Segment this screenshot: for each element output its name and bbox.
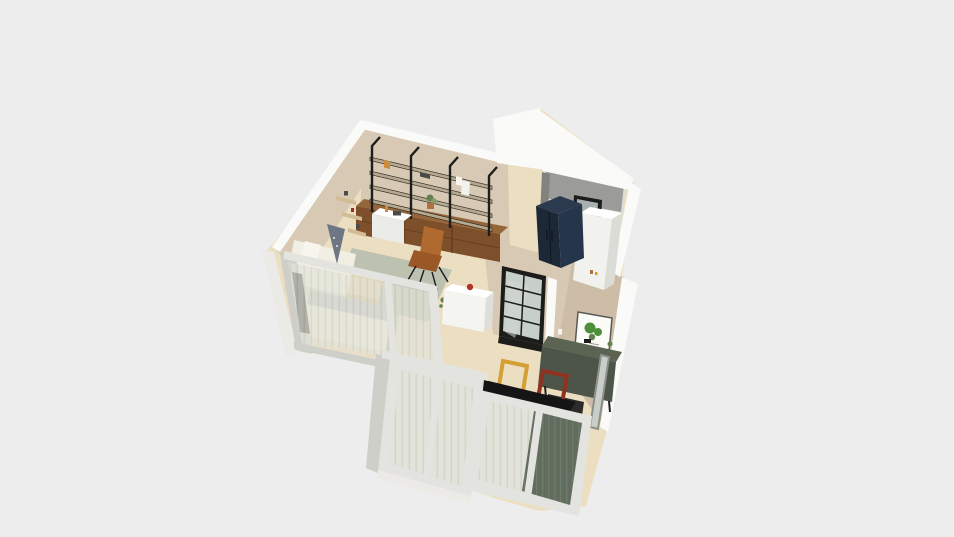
- cushion-dot-2: [336, 245, 338, 247]
- shelf-vase: [456, 176, 462, 186]
- floorplan-viewport[interactable]: [0, 0, 954, 537]
- cushion-dot-3: [332, 252, 334, 254]
- sideboard-mug: [558, 329, 562, 335]
- desk-lamp: [385, 206, 388, 212]
- desk-laptop: [393, 211, 401, 216]
- red-kettle: [467, 284, 473, 290]
- floating-shelf-decor-3: [356, 224, 360, 229]
- kitchen-counter: [442, 284, 494, 332]
- art-leaf: [585, 323, 596, 334]
- navy-cabinet-front: [536, 206, 561, 268]
- hall-plant-3: [439, 304, 443, 308]
- art-leaf-2: [594, 328, 602, 336]
- shelf-books: [384, 160, 390, 169]
- sideboard-plant: [608, 342, 613, 347]
- sideboard-leg-2: [609, 401, 610, 412]
- floating-shelf-decor-2: [351, 208, 354, 212]
- navy-cabinet-side: [558, 204, 584, 268]
- cabinet-plant-leaves-2: [431, 198, 437, 204]
- floorplan-render: [0, 0, 954, 537]
- sideboard-speaker: [584, 339, 591, 343]
- cushion-dot: [333, 237, 335, 239]
- cabinet-plant-pot: [427, 203, 434, 209]
- utility-west-exterior: [493, 108, 546, 170]
- detergent-bottle-2: [595, 272, 598, 275]
- detergent-bottle: [590, 270, 593, 274]
- floating-shelf-decor-1: [344, 191, 348, 196]
- shelf-hanging-cloth: [461, 180, 470, 196]
